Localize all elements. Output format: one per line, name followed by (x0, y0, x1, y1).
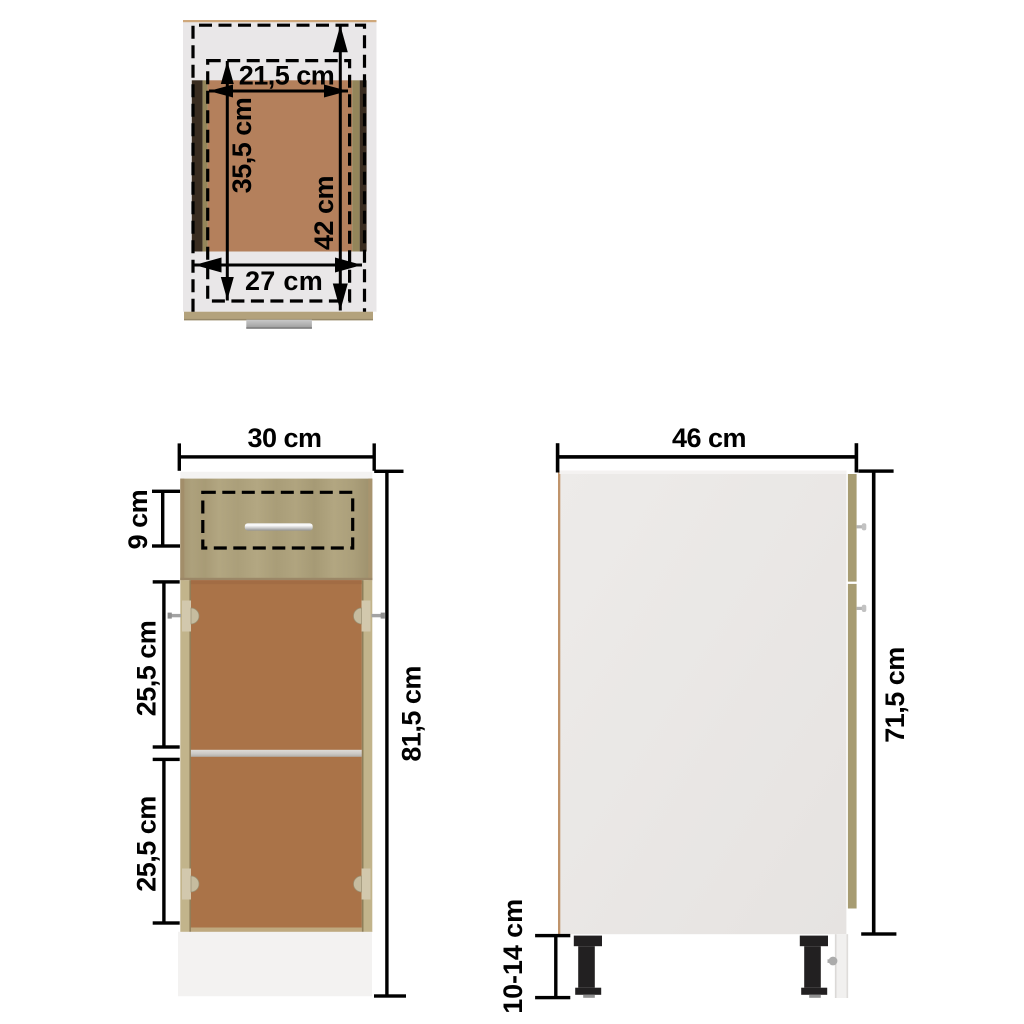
svg-text:46 cm: 46 cm (672, 423, 746, 453)
svg-text:30 cm: 30 cm (247, 423, 321, 453)
svg-text:25,5 cm: 25,5 cm (132, 621, 162, 717)
svg-text:21,5 cm: 21,5 cm (239, 61, 335, 91)
svg-text:25,5 cm: 25,5 cm (132, 796, 162, 892)
svg-text:35,5 cm: 35,5 cm (227, 98, 257, 194)
svg-text:27 cm: 27 cm (245, 266, 323, 296)
svg-text:42 cm: 42 cm (309, 176, 339, 250)
svg-text:81,5 cm: 81,5 cm (396, 666, 426, 762)
svg-text:9 cm: 9 cm (123, 490, 153, 550)
svg-text:71,5 cm: 71,5 cm (880, 647, 910, 743)
svg-text:10-14 cm: 10-14 cm (498, 899, 528, 1014)
